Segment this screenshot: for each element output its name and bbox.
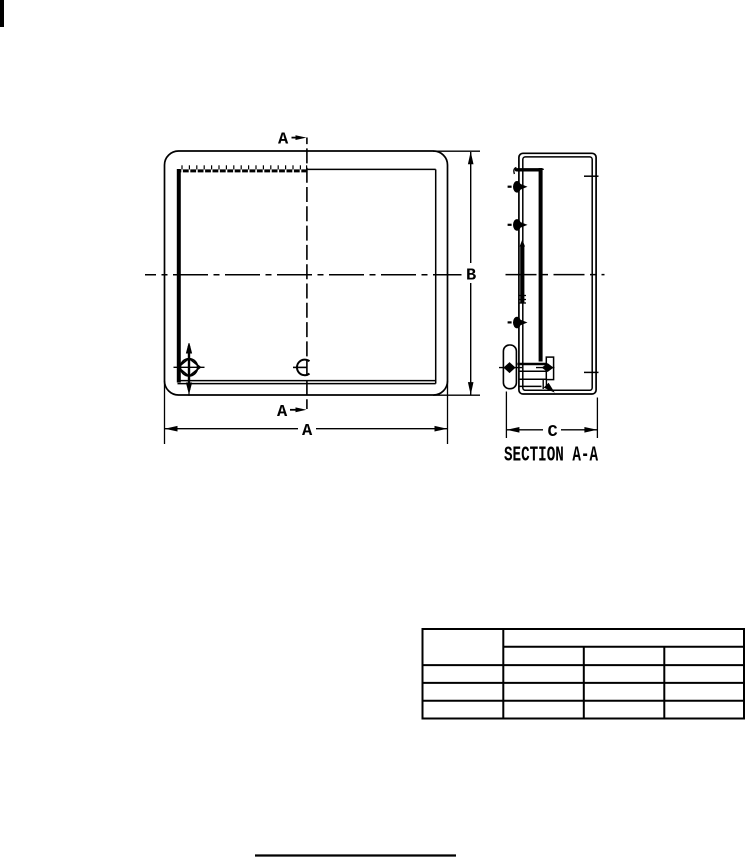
svg-text:C: C	[548, 423, 558, 442]
svg-text:A: A	[302, 422, 313, 441]
svg-text:SECTION A-A: SECTION A-A	[504, 444, 598, 468]
svg-text:A: A	[277, 403, 288, 422]
svg-text:A: A	[278, 131, 289, 150]
svg-text:B: B	[466, 266, 476, 285]
